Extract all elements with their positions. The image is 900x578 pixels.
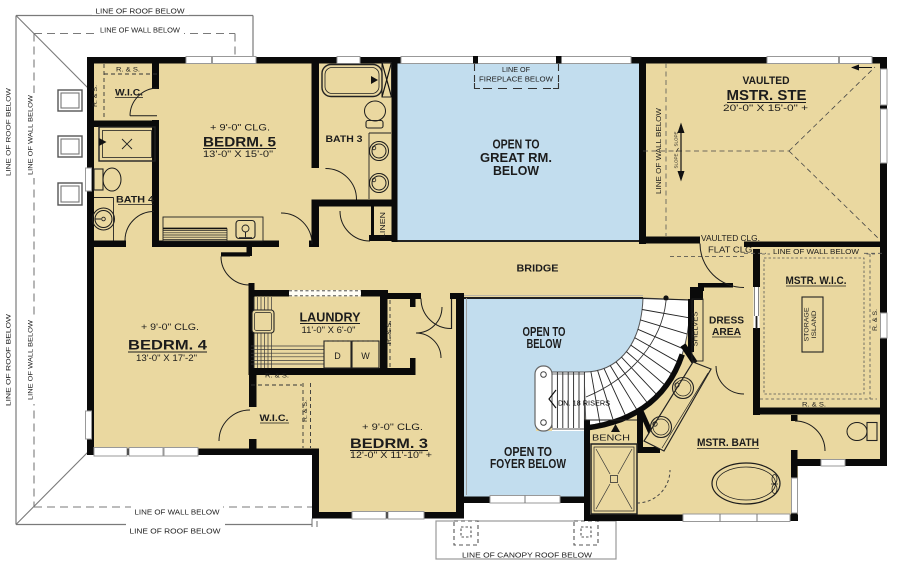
svg-text:R. & S.: R. & S. — [116, 67, 140, 74]
svg-text:BATH 3: BATH 3 — [326, 134, 363, 145]
svg-text:SHELVES: SHELVES — [693, 311, 700, 346]
svg-text:BATH 4: BATH 4 — [116, 195, 155, 206]
svg-text:AREA: AREA — [712, 326, 741, 338]
svg-text:R. & S.: R. & S. — [92, 85, 99, 107]
svg-text:MSTR. W.I.C.: MSTR. W.I.C. — [786, 275, 847, 287]
svg-text:ISLAND: ISLAND — [811, 310, 818, 338]
svg-text:W: W — [361, 351, 370, 361]
svg-text:13'-0" X 15'-0": 13'-0" X 15'-0" — [203, 149, 273, 159]
svg-text:20'-0" X 15'-0" +: 20'-0" X 15'-0" + — [723, 103, 809, 114]
svg-text:LINE OF ROOF BELOW: LINE OF ROOF BELOW — [96, 9, 185, 16]
svg-text:12'-0" X 11'-10" +: 12'-0" X 11'-10" + — [350, 450, 432, 460]
svg-text:DN. 18 RISERS: DN. 18 RISERS — [558, 399, 610, 408]
svg-text:+ 9'-0" CLG.: + 9'-0" CLG. — [141, 322, 199, 332]
svg-text:D: D — [334, 351, 341, 361]
svg-text:+ 9'-0" CLG.: + 9'-0" CLG. — [210, 123, 270, 133]
svg-text:BEDRM. 4: BEDRM. 4 — [128, 337, 207, 353]
svg-text:R. & S.: R. & S. — [265, 373, 289, 380]
svg-text:LINE OF ROOF BELOW: LINE OF ROOF BELOW — [6, 313, 13, 406]
svg-text:LINE OF WALL BELOW: LINE OF WALL BELOW — [773, 249, 859, 256]
svg-text:BELOW: BELOW — [527, 337, 562, 351]
svg-text:BEDRM. 3: BEDRM. 3 — [350, 435, 428, 451]
svg-text:BELOW: BELOW — [493, 163, 540, 178]
svg-text:LINE OF WALL BELOW: LINE OF WALL BELOW — [656, 108, 663, 194]
svg-text:W.I.C.: W.I.C. — [260, 413, 289, 424]
svg-text:LINE OF: LINE OF — [502, 67, 530, 74]
svg-text:LINE OF WALL BELOW: LINE OF WALL BELOW — [28, 94, 35, 175]
svg-text:SLOPE: SLOPE — [674, 131, 679, 146]
svg-text:STORAGE: STORAGE — [804, 307, 811, 342]
svg-text:LINE OF CANOPY ROOF BELOW: LINE OF CANOPY ROOF BELOW — [462, 553, 592, 560]
svg-text:BRIDGE: BRIDGE — [517, 264, 559, 275]
svg-text:LAUNDRY: LAUNDRY — [300, 310, 361, 325]
svg-text:R. & S.: R. & S. — [302, 400, 309, 422]
svg-text:LINE OF WALL BELOW: LINE OF WALL BELOW — [100, 28, 180, 35]
svg-text:R. & S.: R. & S. — [872, 309, 879, 331]
svg-text:11'-0" X 6'-0": 11'-0" X 6'-0" — [302, 325, 356, 335]
svg-text:R. & S.: R. & S. — [386, 320, 393, 344]
svg-text:LINE OF WALL BELOW: LINE OF WALL BELOW — [135, 510, 220, 517]
svg-text:LINE OF WALL BELOW: LINE OF WALL BELOW — [28, 319, 35, 400]
svg-text:MSTR. BATH: MSTR. BATH — [697, 437, 759, 449]
svg-text:FIREPLACE BELOW: FIREPLACE BELOW — [479, 77, 553, 84]
svg-text:W.I.C.: W.I.C. — [115, 88, 143, 99]
svg-text:FOYER BELOW: FOYER BELOW — [490, 457, 566, 471]
svg-text:SLOPE: SLOPE — [674, 153, 679, 168]
svg-text:+ 9'-0" CLG.: + 9'-0" CLG. — [362, 422, 423, 432]
svg-text:LINE OF ROOF BELOW: LINE OF ROOF BELOW — [130, 529, 221, 536]
svg-text:MSTR. STE: MSTR. STE — [727, 88, 807, 104]
svg-text:VAULTED CLG.: VAULTED CLG. — [701, 233, 760, 243]
svg-text:BENCH: BENCH — [592, 433, 630, 443]
svg-text:R. & S.: R. & S. — [802, 402, 826, 409]
svg-text:LINEN: LINEN — [378, 212, 387, 238]
svg-text:13'-0" X 17'-2": 13'-0" X 17'-2" — [136, 353, 197, 363]
svg-text:BEDRM. 5: BEDRM. 5 — [203, 134, 276, 150]
svg-text:VAULTED: VAULTED — [743, 75, 790, 87]
svg-text:LINE OF ROOF BELOW: LINE OF ROOF BELOW — [6, 87, 13, 176]
svg-text:DRESS: DRESS — [709, 315, 744, 327]
